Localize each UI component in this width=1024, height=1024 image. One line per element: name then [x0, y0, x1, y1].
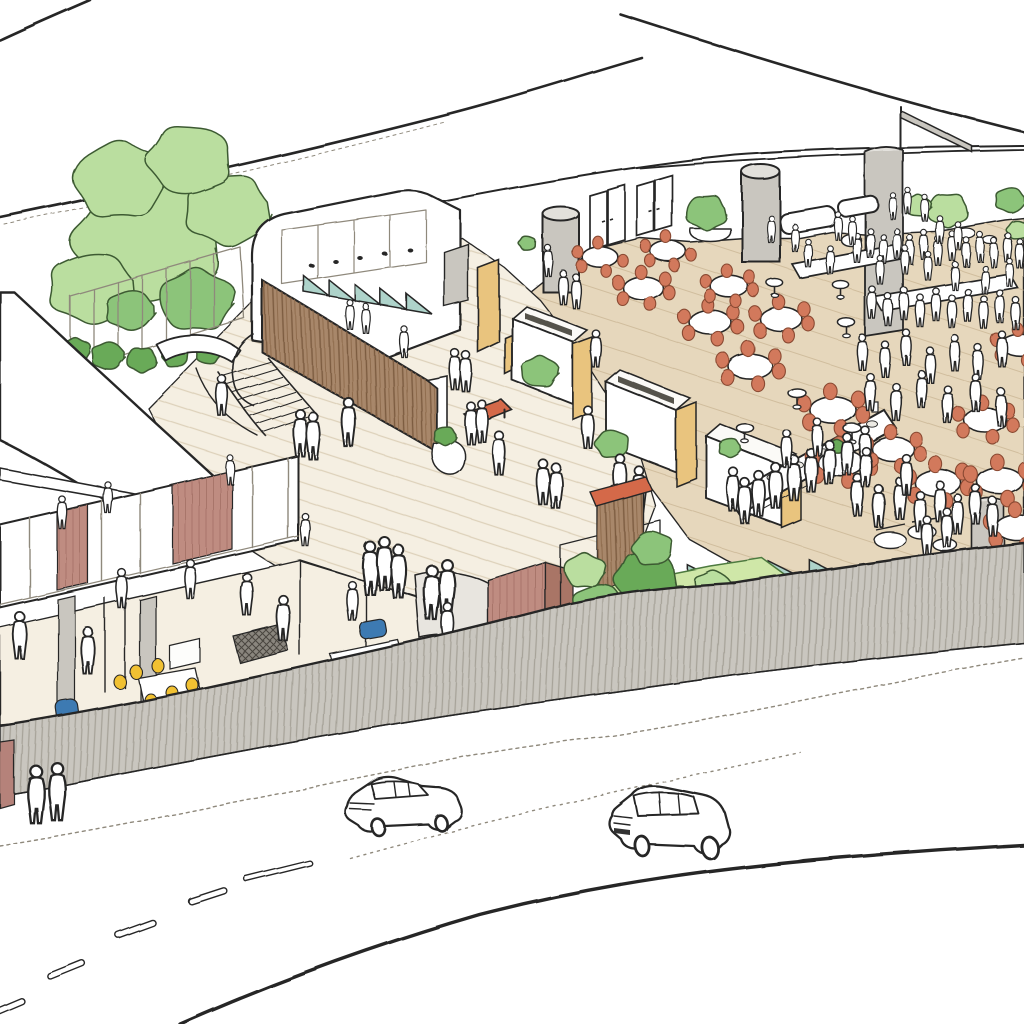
- person: [28, 766, 44, 824]
- chair: [716, 352, 729, 368]
- chair: [721, 264, 732, 278]
- chair: [914, 446, 926, 461]
- chair: [593, 236, 604, 249]
- chair: [711, 331, 723, 346]
- person: [921, 195, 929, 221]
- chair: [686, 248, 697, 261]
- chair: [1009, 502, 1022, 518]
- chair: [910, 432, 922, 447]
- shrub: [92, 342, 126, 370]
- chair: [700, 274, 711, 288]
- chair: [741, 340, 754, 356]
- chair: [601, 265, 612, 278]
- chair: [644, 254, 655, 267]
- chair: [884, 425, 896, 440]
- gray-fin: [444, 244, 468, 306]
- chair: [644, 296, 656, 310]
- chair: [986, 429, 998, 444]
- sketch-canvas: [0, 0, 1024, 1024]
- shrub: [127, 348, 156, 373]
- chair: [731, 319, 743, 334]
- chair: [952, 407, 964, 422]
- courtyard-tree: [51, 127, 272, 331]
- chair: [772, 363, 785, 379]
- chair: [748, 283, 759, 297]
- chair: [730, 294, 741, 308]
- lane-dashes: [0, 860, 312, 1018]
- cylinder-column: [742, 165, 780, 263]
- chair: [990, 454, 1004, 471]
- chair: [704, 289, 715, 303]
- person: [1016, 239, 1024, 269]
- chair: [617, 291, 629, 305]
- chair: [1006, 417, 1018, 432]
- bush: [996, 188, 1024, 213]
- chair: [576, 260, 587, 273]
- chair: [659, 272, 671, 286]
- chair: [957, 423, 969, 438]
- chair: [798, 302, 810, 317]
- chair: [669, 259, 680, 272]
- car-wagon: [610, 786, 730, 860]
- column: [58, 596, 75, 714]
- architectural-sketch: [0, 0, 1024, 1024]
- chair: [635, 265, 647, 279]
- person: [49, 763, 65, 821]
- chair: [618, 254, 629, 267]
- chair: [802, 316, 814, 331]
- chair: [721, 370, 734, 386]
- chair: [572, 246, 583, 259]
- chair: [640, 240, 651, 253]
- rose-strip: [0, 740, 14, 808]
- double-door: [637, 175, 672, 236]
- chair: [823, 383, 837, 400]
- chair: [744, 270, 755, 284]
- plant-pot: [690, 228, 731, 241]
- chair: [964, 466, 978, 483]
- chair: [682, 325, 694, 340]
- chair: [753, 322, 765, 337]
- bush: [686, 196, 726, 230]
- chair: [663, 285, 675, 299]
- back-wall-fin: [900, 106, 972, 152]
- chair: [751, 375, 764, 391]
- bush: [519, 237, 536, 250]
- chair: [768, 348, 781, 364]
- chair: [661, 230, 672, 243]
- car-sedan: [345, 777, 461, 837]
- chair: [612, 275, 624, 289]
- chair: [928, 456, 942, 473]
- bush: [928, 194, 968, 228]
- chair: [782, 328, 794, 343]
- chair: [677, 309, 689, 324]
- chair: [748, 306, 760, 321]
- chair: [851, 391, 865, 408]
